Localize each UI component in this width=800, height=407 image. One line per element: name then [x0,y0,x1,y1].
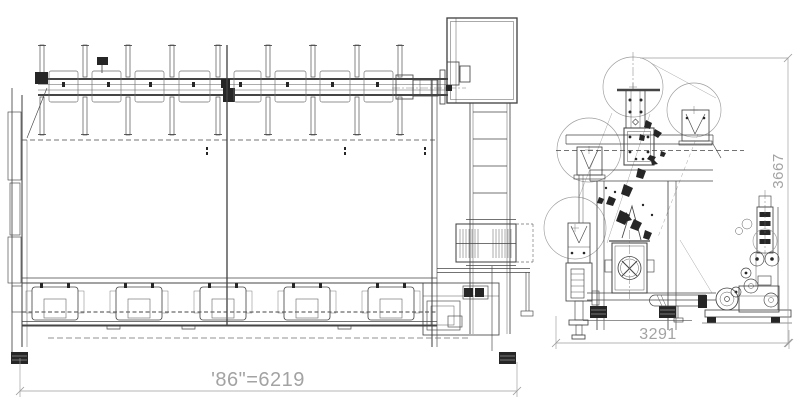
control-cluster [423,266,499,351]
drawing-canvas: '86"=6219 [0,0,800,407]
end-elevation-view: 3667 3291 [544,52,793,349]
machine-feet [11,352,516,364]
technical-drawing: '86"=6219 [0,0,800,407]
vent-box [437,220,533,317]
end-view-width-label: 3291 [639,326,677,343]
center-mast [617,90,660,165]
top-rail [35,57,448,102]
side-view-width-label: '86"=6219 [211,369,305,391]
drive-assembly [392,62,470,104]
side-view-width-dimension: '86"=6219 [16,358,521,397]
left-end-frame [8,88,47,352]
winder-unit [650,190,793,323]
fittings [597,120,666,240]
ladder [470,103,510,334]
end-view-height-label: 3667 [770,153,787,188]
tower-cabinet [447,18,517,103]
side-elevation-view: '86"=6219 [8,18,533,397]
turret-brackets [574,110,712,179]
bottom-units [26,283,420,320]
